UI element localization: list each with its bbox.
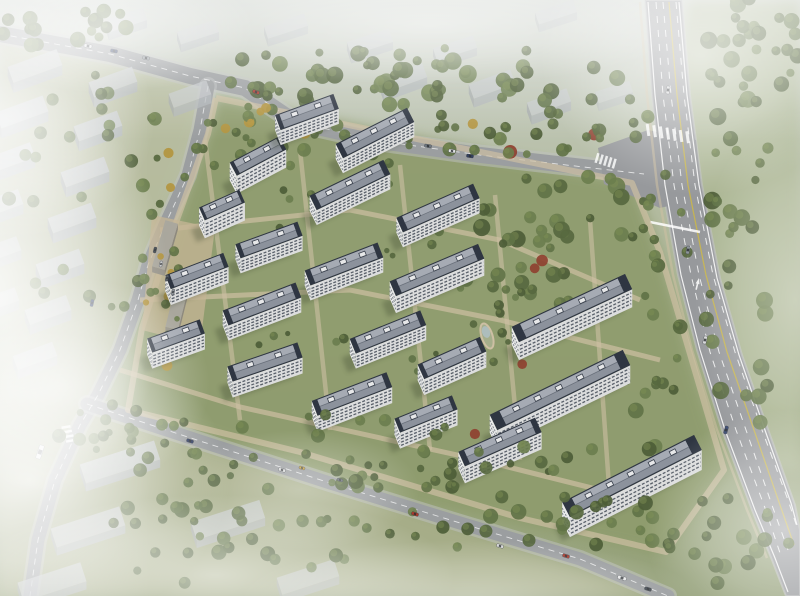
tree-highlight: [340, 335, 345, 340]
tree-highlight: [445, 468, 451, 474]
tree-highlight: [438, 522, 445, 529]
tree-highlight: [536, 457, 542, 463]
tree-highlight: [641, 388, 647, 394]
tree: [536, 255, 548, 267]
tree: [470, 429, 480, 439]
tree: [517, 359, 527, 369]
tree: [286, 195, 294, 203]
tree-highlight: [647, 194, 652, 199]
tree-highlight: [452, 482, 456, 486]
tree: [409, 355, 417, 363]
tree: [417, 465, 424, 472]
tree: [512, 294, 519, 301]
tree-highlight: [481, 526, 488, 533]
tree-highlight: [551, 215, 559, 223]
tree-highlight: [356, 416, 361, 421]
tree: [305, 413, 313, 421]
tree-highlight: [485, 510, 493, 518]
tree-highlight: [422, 482, 427, 487]
aerial-masterplan-rendering: [0, 0, 800, 596]
tree-highlight: [517, 263, 523, 269]
tree: [499, 239, 507, 247]
tree: [390, 253, 396, 259]
tree-highlight: [481, 462, 487, 468]
tree-highlight: [448, 459, 453, 464]
tree-highlight: [479, 204, 485, 210]
tree-highlight: [537, 226, 543, 232]
tree-highlight: [591, 539, 598, 546]
tree-highlight: [504, 148, 510, 154]
tree-highlight: [534, 236, 540, 242]
tree: [156, 200, 164, 208]
tree: [507, 460, 515, 468]
tree-highlight: [524, 535, 530, 541]
tree-highlight: [496, 309, 501, 314]
tree-highlight: [539, 185, 547, 193]
tree: [384, 248, 389, 253]
tree-highlight: [475, 220, 484, 229]
tree-highlight: [522, 174, 527, 179]
tree-highlight: [170, 247, 175, 252]
tree-highlight: [674, 355, 678, 359]
vehicle-windshield: [687, 248, 690, 251]
tree-highlight: [615, 190, 623, 198]
tree-highlight: [644, 201, 649, 206]
tree: [332, 338, 340, 346]
tree-highlight: [503, 234, 510, 241]
tree-highlight: [428, 241, 433, 246]
tree-highlight: [490, 358, 494, 362]
tree-highlight: [648, 309, 654, 315]
tree-highlight: [192, 144, 198, 150]
tree-highlight: [525, 212, 531, 218]
tree-highlight: [547, 268, 555, 276]
vehicle-windshield: [451, 150, 454, 152]
tree: [166, 183, 175, 192]
tree: [154, 155, 161, 162]
tree-highlight: [557, 144, 564, 151]
tree-highlight: [516, 276, 524, 284]
tree-highlight: [571, 506, 578, 513]
tree-highlight: [503, 286, 507, 290]
tree-highlight: [557, 518, 564, 525]
tree-highlight: [518, 289, 522, 293]
tree-highlight: [640, 225, 645, 230]
tree-highlight: [512, 505, 520, 513]
tree-highlight: [270, 332, 274, 336]
tree-highlight: [528, 285, 533, 290]
tree-highlight: [321, 410, 326, 415]
vehicle-windshield: [427, 145, 430, 147]
tree-highlight: [211, 161, 216, 166]
tree-highlight: [519, 441, 526, 448]
tree-highlight: [299, 144, 306, 151]
tree-highlight: [652, 262, 657, 267]
tree-highlight: [495, 301, 500, 306]
tree: [523, 150, 531, 158]
tree-highlight: [463, 523, 469, 529]
tree-highlight: [643, 443, 650, 450]
fog-patch: [180, 430, 420, 550]
tree-highlight: [633, 506, 639, 512]
tree: [641, 292, 649, 300]
tree-highlight: [591, 502, 597, 508]
tree: [285, 331, 290, 336]
tree-highlight: [629, 233, 634, 238]
tree-highlight: [475, 448, 480, 453]
tree-highlight: [432, 430, 438, 436]
tree: [505, 339, 511, 345]
tree-highlight: [547, 244, 551, 248]
tree: [406, 142, 413, 149]
tree: [256, 341, 263, 348]
tree-highlight: [431, 477, 436, 482]
tree-highlight: [562, 452, 568, 458]
tree-highlight: [650, 251, 656, 257]
tree-highlight: [587, 215, 591, 219]
tree-highlight: [470, 146, 475, 151]
tree-highlight: [498, 329, 503, 334]
tree-highlight: [237, 422, 244, 429]
tree-highlight: [236, 150, 242, 156]
tree-highlight: [555, 298, 561, 304]
tree: [470, 320, 478, 328]
tree-highlight: [385, 159, 390, 164]
vehicle-windshield: [469, 155, 472, 157]
tree-highlight: [678, 209, 682, 213]
tree-highlight: [175, 265, 180, 270]
tree-highlight: [603, 496, 608, 501]
tree: [530, 263, 540, 273]
tree: [280, 186, 288, 194]
tree-highlight: [630, 404, 638, 412]
tree: [163, 148, 173, 158]
tree-highlight: [418, 446, 424, 452]
tree-highlight: [380, 415, 386, 421]
tree-highlight: [639, 497, 646, 504]
tree-highlight: [587, 444, 593, 450]
tree-highlight: [308, 191, 312, 195]
tree-highlight: [608, 518, 613, 523]
tree-highlight: [549, 465, 555, 471]
tree-highlight: [616, 228, 623, 235]
tree-highlight: [560, 493, 565, 498]
tree-highlight: [488, 282, 494, 288]
tree-highlight: [286, 162, 291, 167]
tree-highlight: [670, 385, 675, 390]
tree-highlight: [497, 491, 504, 498]
tree-highlight: [651, 236, 656, 241]
tree-highlight: [653, 377, 658, 382]
tree-highlight: [441, 424, 445, 428]
tree-highlight: [181, 174, 185, 178]
tree-highlight: [606, 174, 612, 180]
tree-highlight: [555, 181, 562, 188]
tree-highlight: [542, 511, 548, 517]
tree-highlight: [555, 223, 563, 231]
scene-canvas: [0, 0, 800, 596]
tree-highlight: [492, 269, 500, 277]
tree-highlight: [675, 323, 679, 327]
tree-highlight: [637, 526, 642, 531]
tree-highlight: [583, 171, 590, 178]
